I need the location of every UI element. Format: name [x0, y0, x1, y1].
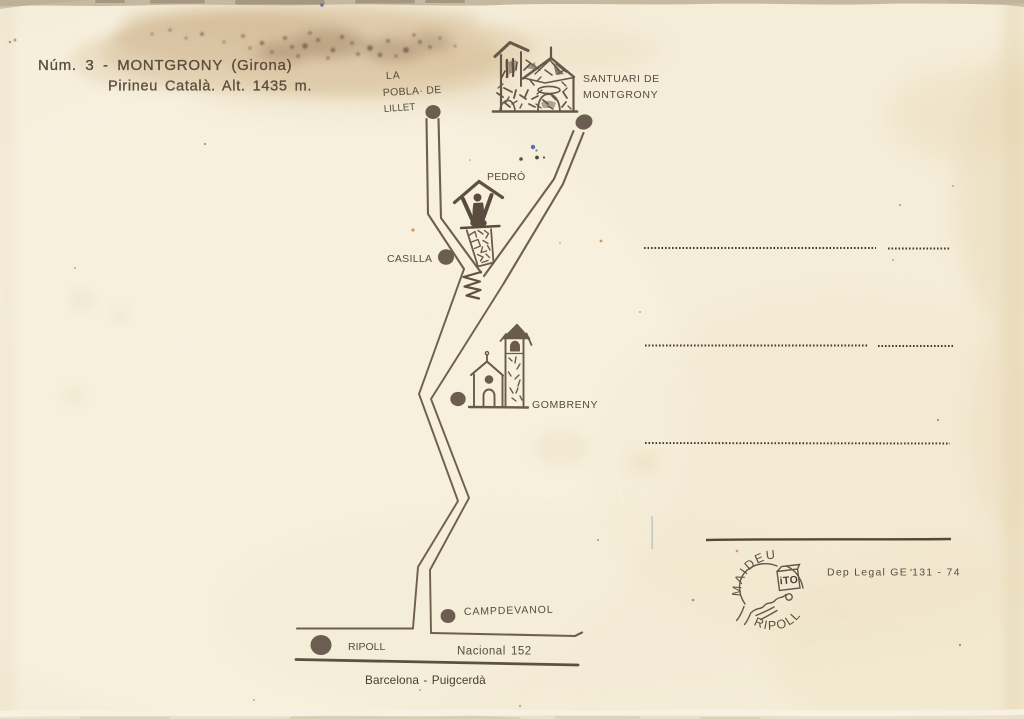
svg-text:SANTUARI DE: SANTUARI DE [583, 73, 660, 85]
svg-text:iTO: iTO [779, 574, 799, 588]
svg-text:CAMPDEVANOL: CAMPDEVANOL [464, 604, 554, 618]
svg-text:MONTGRONY: MONTGRONY [583, 89, 658, 101]
svg-text:Núm. 3 - MONTGRONY (Girona): Núm. 3 - MONTGRONY (Girona) [38, 57, 292, 74]
svg-text:Nacional 152: Nacional 152 [457, 646, 532, 658]
svg-text:Dep Legal GE 131 - 74: Dep Legal GE 131 - 74 [827, 567, 961, 579]
svg-text:RIPOLL: RIPOLL [348, 641, 386, 653]
svg-text:CASILLA: CASILLA [387, 253, 432, 265]
svg-text:Pirineu Català. Alt. 1435 m.: Pirineu Català. Alt. 1435 m. [108, 79, 312, 95]
svg-text:LILLET: LILLET [383, 102, 415, 115]
svg-text:Barcelona - Puigcerdà: Barcelona - Puigcerdà [365, 673, 486, 687]
svg-text:GOMBRENY: GOMBRENY [532, 399, 598, 411]
svg-text:LA: LA [386, 69, 401, 82]
svg-text:PEDRÓ: PEDRÓ [487, 170, 525, 183]
